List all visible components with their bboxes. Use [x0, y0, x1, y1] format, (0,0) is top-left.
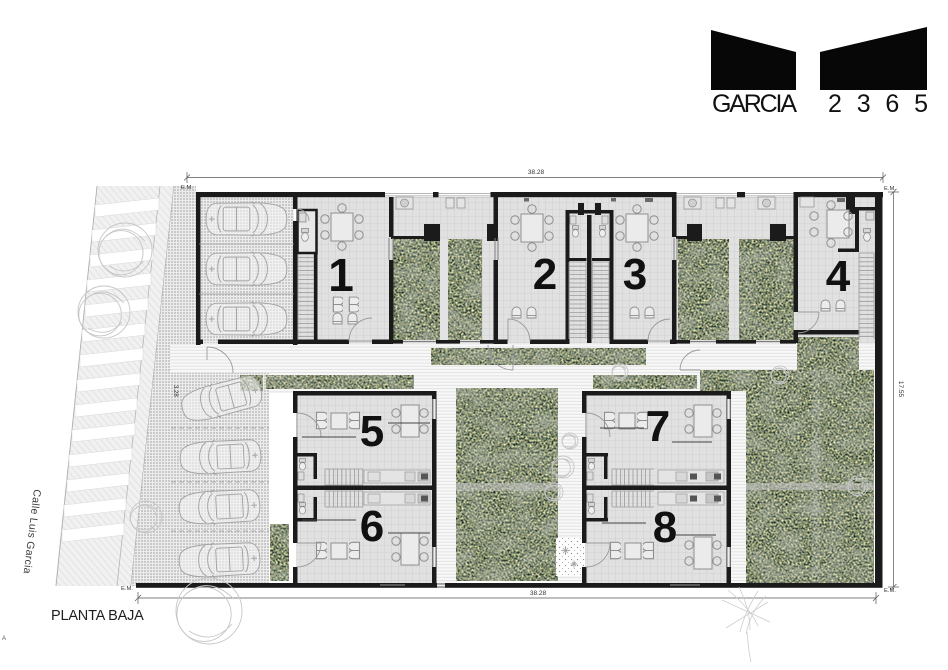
svg-text:7: 7	[646, 402, 670, 451]
svg-text:8: 8	[653, 503, 677, 552]
svg-text:E.M.: E.M.	[884, 588, 896, 594]
svg-text:6: 6	[360, 502, 384, 551]
svg-text:A: A	[2, 636, 6, 642]
svg-text:3.28: 3.28	[172, 385, 178, 397]
svg-text:1: 1	[328, 249, 354, 301]
svg-text:17.55: 17.55	[897, 381, 904, 398]
svg-text:38.28: 38.28	[530, 590, 547, 597]
svg-text:GARCIA: GARCIA	[712, 90, 797, 118]
svg-text:E.M.: E.M.	[181, 185, 193, 191]
svg-text:2: 2	[533, 250, 557, 299]
svg-text:E.M.: E.M.	[121, 586, 133, 592]
svg-text:4: 4	[826, 252, 851, 301]
svg-text:5: 5	[360, 407, 384, 456]
svg-text:PLANTA BAJA: PLANTA BAJA	[51, 608, 144, 624]
svg-text:38.28: 38.28	[528, 169, 545, 176]
svg-text:E.M.: E.M.	[884, 186, 896, 192]
svg-text:3: 3	[623, 250, 647, 299]
